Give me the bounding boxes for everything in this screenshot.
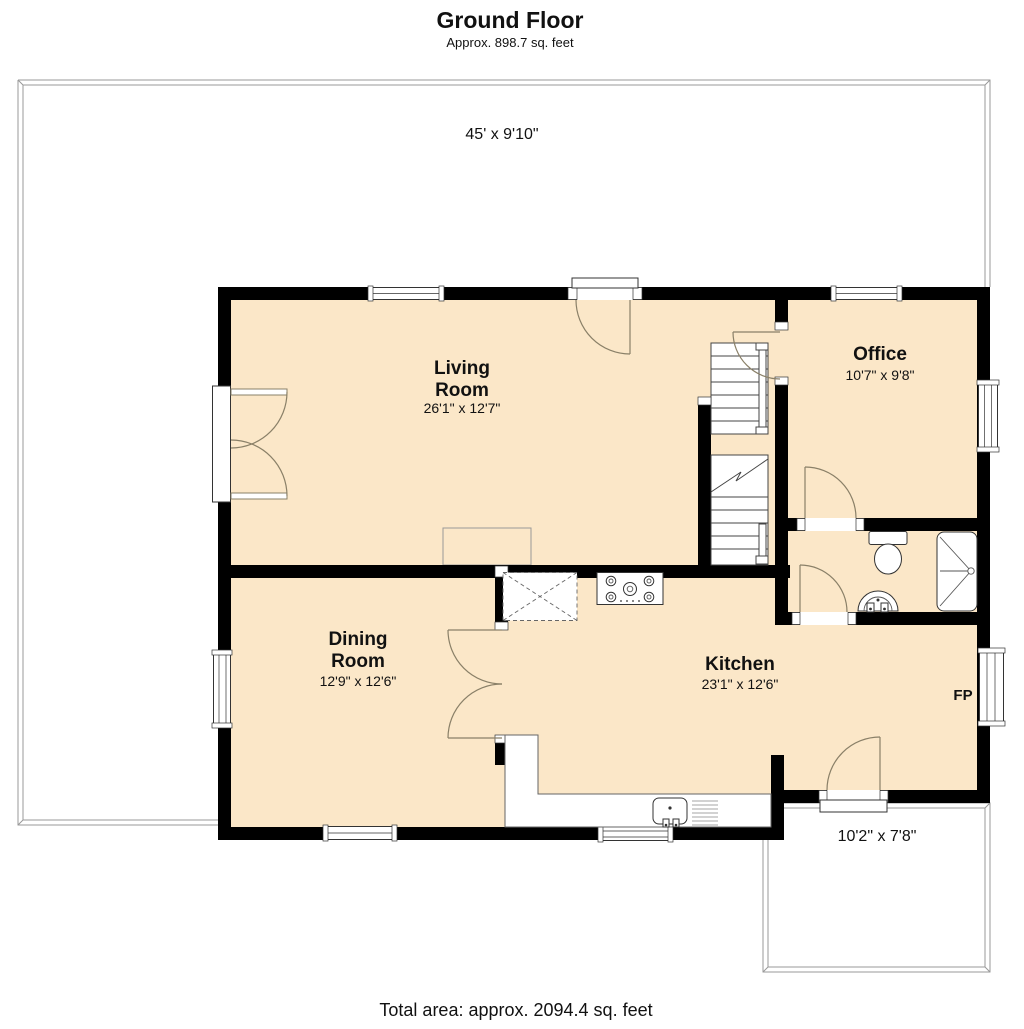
rear-porch-dimensions: 10'2" x 7'8": [838, 828, 917, 845]
page-title: Ground Floor: [437, 7, 584, 33]
dining-room-label-2: Room: [331, 651, 385, 672]
floor-plan-page: Ground Floor Approx. 898.7 sq. feet 45' …: [0, 0, 1024, 1029]
window-office-right: [977, 380, 999, 452]
window-kitchen-bottom: [598, 825, 673, 842]
page-subtitle: Approx. 898.7 sq. feet: [446, 35, 574, 50]
kitchen-label: Kitchen: [705, 654, 775, 675]
window-dining-bottom: [323, 825, 397, 841]
bath-jamb-right: [848, 613, 856, 625]
cap-stairwall-right: [775, 377, 788, 385]
wall-stairwell-right: [775, 377, 788, 625]
living-room-label: Living: [434, 358, 490, 379]
window-living-top: [368, 286, 444, 301]
deck-inner-top: [23, 85, 985, 287]
office-dimensions: 10'7" x 9'8": [846, 367, 915, 383]
entry-door-gap: [577, 287, 633, 300]
dining-room-label: Dining: [328, 629, 387, 650]
window-dining-left: [212, 650, 232, 728]
stairs-upper-rail: [759, 346, 766, 431]
wall-step: [771, 755, 784, 840]
deck-outer-top: [18, 80, 990, 287]
wall-bath-top-right: [856, 518, 977, 531]
living-room-label-2: Room: [435, 380, 489, 401]
shower: [937, 532, 977, 611]
cap-stairwall-left: [698, 397, 711, 405]
stairs-rail-cap-bottom: [756, 556, 768, 564]
deck-outer-left: [18, 80, 219, 825]
cap-dining-wall-a: [495, 622, 508, 630]
floor-plan-svg: Ground Floor Approx. 898.7 sq. feet 45' …: [0, 0, 1024, 1029]
window-office-top: [831, 286, 902, 301]
drainboard: [692, 801, 718, 825]
entry-door-frame: [572, 278, 638, 288]
office-jamb-right: [856, 519, 864, 531]
office-door-gap: [805, 518, 856, 531]
cap-stub: [775, 322, 788, 330]
bath-door-gap: [800, 612, 848, 625]
rear-door-frame: [820, 800, 887, 812]
stairs-rail-cap-top: [756, 343, 768, 350]
office-label: Office: [853, 344, 907, 365]
stove: [597, 573, 663, 605]
kitchen-dimensions: 23'1" x 12'6": [702, 676, 779, 692]
dining-room-dimensions: 12'9" x 12'6": [320, 673, 397, 689]
office-jamb-left: [797, 519, 805, 531]
hearth: [443, 528, 531, 565]
deck-dimensions: 45' x 9'10": [465, 126, 538, 143]
entry-jamb-left: [568, 288, 577, 300]
kitchen-sink: [653, 798, 687, 827]
deck-inner-left: [23, 85, 219, 820]
stairs-rail-cap-mid: [756, 427, 768, 434]
window-fireplace-right: [978, 648, 1005, 726]
fireplace-label: FP: [953, 687, 972, 704]
living-room-dimensions: 26'1" x 12'7": [424, 400, 501, 416]
entry-jamb-right: [633, 288, 642, 300]
wall-bath-bottom-right: [848, 612, 977, 625]
total-area-label: Total area: approx. 2094.4 sq. feet: [379, 1000, 652, 1020]
dashed-cabinet: [503, 573, 577, 621]
wall-stairwell-left: [698, 397, 711, 578]
bath-jamb-left: [792, 613, 800, 625]
